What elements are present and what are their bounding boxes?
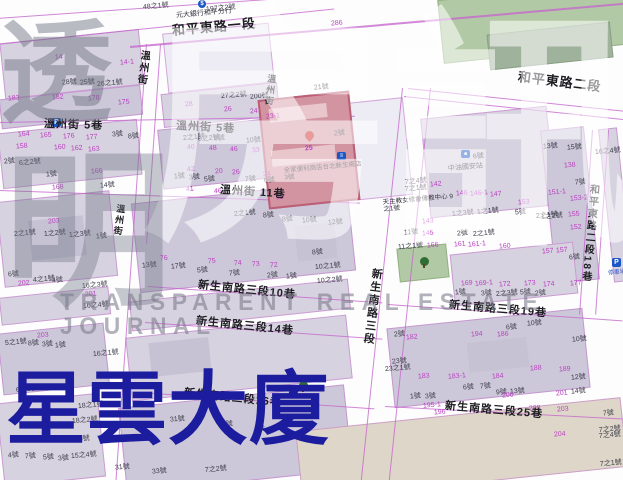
lot-number: 203 (37, 332, 49, 340)
street-label: 溫州街 5巷 (44, 119, 104, 132)
lot-number: 8號 (128, 133, 139, 141)
lot-number: 204 (554, 431, 566, 439)
lot-number: 8號 (263, 212, 274, 220)
lot-number: 147 (490, 191, 502, 199)
lot-number: 162 (71, 145, 83, 153)
lot-number: 1號 (46, 171, 57, 179)
lot-number: 7號 (480, 383, 491, 391)
lot-number: 155 (568, 211, 580, 219)
lot-number: 10號 (246, 136, 261, 144)
lot-number: 3號 (58, 455, 69, 463)
gas-station-number: 6號 (473, 153, 485, 162)
lot-number: 5號 (197, 267, 208, 275)
lot-number: 174 (543, 281, 555, 289)
lot-number: 48 (209, 145, 217, 153)
lot-number: 26 (224, 106, 232, 114)
lot-number: 1之3號 (452, 209, 474, 218)
lot-number: 1號 (55, 342, 66, 350)
lot-number: 12號 (328, 218, 343, 226)
lot-number: 177 (86, 134, 98, 142)
lot-number: 8號 (312, 249, 323, 257)
lot-number: 5號 (515, 209, 526, 217)
lot-number: 20 (215, 168, 223, 176)
lot-number: 14號 (571, 387, 586, 395)
lot-number: 186 (497, 331, 509, 339)
lot-number: 163 (88, 146, 100, 154)
lot-number: 158 (16, 143, 28, 151)
lot-number: 189 (559, 366, 571, 374)
lot-number: 26 (232, 169, 240, 177)
lot-number: 1號 (174, 173, 185, 181)
lot-number: 5號 (520, 289, 531, 297)
map-canvas[interactable]: 25 ≡ 全家便利商店台北新生南店 3號 $ 元大銀行和平分行 ■ 6號 中油國… (0, 0, 623, 480)
lot-number: 161 (454, 241, 466, 249)
lot-number: 203 (48, 218, 60, 226)
lot-number: 1之1號 (477, 207, 499, 216)
lot-number: 2之1號 (473, 229, 495, 238)
lot-number: 3號 (112, 131, 123, 139)
lot-number: 40 (187, 144, 195, 152)
lot-number: 2號 (4, 158, 15, 166)
lot-number: 13號 (543, 142, 558, 150)
lot-number: 166 (427, 242, 439, 250)
store-cart-icon: ≡ (337, 152, 346, 160)
lot-number: 176 (63, 133, 75, 141)
lot-number: 161-1 (468, 240, 486, 249)
lot-number: 3號 (481, 290, 492, 298)
lot-number: 7號 (575, 179, 586, 187)
lot-number: 3號 (189, 174, 200, 182)
lot-number: 160 (54, 144, 66, 152)
lot-number: 28號 (62, 78, 77, 86)
lot-number: 8號 (28, 340, 39, 348)
road-line (0, 0, 475, 19)
lot-number: 5號 (43, 454, 54, 462)
lot-number: 182 (52, 94, 64, 102)
parking-label: 停車場 (608, 269, 623, 277)
lot-number: 182 (406, 334, 418, 342)
lot-number: 14 (55, 54, 63, 62)
lot-number: 1號 (286, 273, 297, 281)
lot-number: 201 (85, 291, 97, 299)
lot-number: 7號 (229, 270, 240, 278)
lot-number: 75 (208, 258, 216, 266)
lot-number: 24 (250, 108, 258, 116)
lot-number: 46 (230, 146, 238, 154)
lot-number: 2號 (535, 290, 546, 298)
lot-number: 10號 (572, 335, 587, 343)
lot-number: 203 (557, 406, 569, 414)
lot-number: 172 (499, 281, 511, 289)
lot-number: 73 (252, 261, 260, 269)
lot-number: 76 (160, 255, 168, 263)
lot-number: 2號 (394, 331, 405, 339)
lot-number: 33 (252, 147, 260, 155)
lot-number: 178 (88, 95, 100, 103)
lot-number: 42 (187, 166, 195, 174)
lot-number: 143 (422, 218, 434, 226)
lot-number: 138 (564, 162, 576, 170)
lot-number: 14號 (100, 181, 115, 189)
lot-number: 4號 (52, 277, 63, 285)
lot-number: 8號 (282, 216, 293, 224)
lot-number: 183 (418, 373, 430, 381)
street-label: 和平東路二段 (517, 70, 602, 93)
lot-number: 168 (52, 184, 64, 192)
store-number: 3號 (284, 174, 295, 182)
lot-number: 164 (18, 131, 30, 139)
lot-number: 10號 (527, 319, 542, 327)
lot-number: 3號 (42, 341, 53, 349)
subject-marker-number: 25 (305, 145, 313, 153)
lot-number: 145 (422, 230, 434, 238)
lot-number: 184 (492, 373, 504, 381)
lot-number: 31號 (115, 463, 130, 471)
lot-number: 7號 (245, 176, 256, 184)
lot-number: 157 (542, 248, 554, 256)
lot-number: 25號 (80, 78, 95, 86)
lot-number: 6號 (264, 177, 275, 185)
lot-number: 188 (530, 365, 542, 373)
tree-icon (420, 257, 429, 266)
lot-number: 74 (234, 260, 242, 268)
lot-number: 41 (186, 186, 194, 194)
lot-number: 2號 (267, 272, 278, 280)
lot-number: 160 (499, 243, 511, 251)
lot-number: 3號 (425, 393, 436, 401)
lot-number: 1號 (410, 393, 421, 401)
lot-number: 21號 (314, 83, 329, 91)
lot-number: 5號 (204, 176, 215, 184)
building-footprint (467, 337, 530, 373)
lot-number: 8號 (214, 135, 225, 143)
lot-number: 157 (556, 247, 568, 255)
lot-number: 202 (18, 280, 30, 288)
lot-number: 1號 (455, 289, 466, 297)
lot-number: 33號 (152, 467, 167, 475)
lot-number: 152 (570, 224, 582, 232)
lot-number: 200 (502, 392, 514, 400)
lot-number: 23-1 (266, 112, 281, 120)
gas-station-icon: ■ (461, 150, 470, 158)
lot-number: 6號 (569, 254, 580, 262)
lot-number: 11號 (404, 228, 419, 236)
lot-number: 12號 (571, 373, 586, 381)
lot-number: 15號 (567, 143, 582, 151)
lot-number: 166 (91, 168, 103, 176)
lot-number: 14-1 (120, 58, 135, 66)
lot-number: 286 (331, 20, 343, 28)
lot-number: 142 (430, 181, 442, 189)
lot-number: 7之1號 (405, 184, 427, 193)
lot-number: 6號 (463, 384, 474, 392)
lot-number: 173 (524, 280, 536, 288)
lot-number: 6號 (8, 271, 19, 279)
lot-number: 153 (518, 199, 530, 207)
lot-number: 146 (456, 190, 468, 198)
lot-number: 2號 (457, 230, 468, 238)
lot-number: 10號 (302, 216, 317, 224)
lot-number: 28 (185, 101, 193, 109)
lot-number: 7號 (603, 410, 614, 418)
lot-number: 201 (556, 390, 568, 398)
lot-number: 169 (461, 280, 473, 288)
lot-number: 1號 (96, 233, 107, 241)
lot-number: 13號 (142, 261, 157, 269)
street-label: 溫州街 (112, 203, 125, 237)
lot-number: 16之1號 (93, 349, 119, 358)
lot-number: 72 (270, 262, 278, 270)
lot-number: 2號 (334, 130, 345, 138)
page-title: 星雲大廈 (6, 370, 330, 450)
lot-number: 194 (471, 331, 483, 339)
parking-icon: P (612, 258, 621, 267)
lot-number: 165 (40, 132, 52, 140)
lot-number: 48之1號 (143, 2, 169, 11)
lot-number: 183 (8, 95, 20, 103)
lot-number: 17號 (171, 262, 186, 270)
lot-number: 175 (118, 99, 130, 107)
